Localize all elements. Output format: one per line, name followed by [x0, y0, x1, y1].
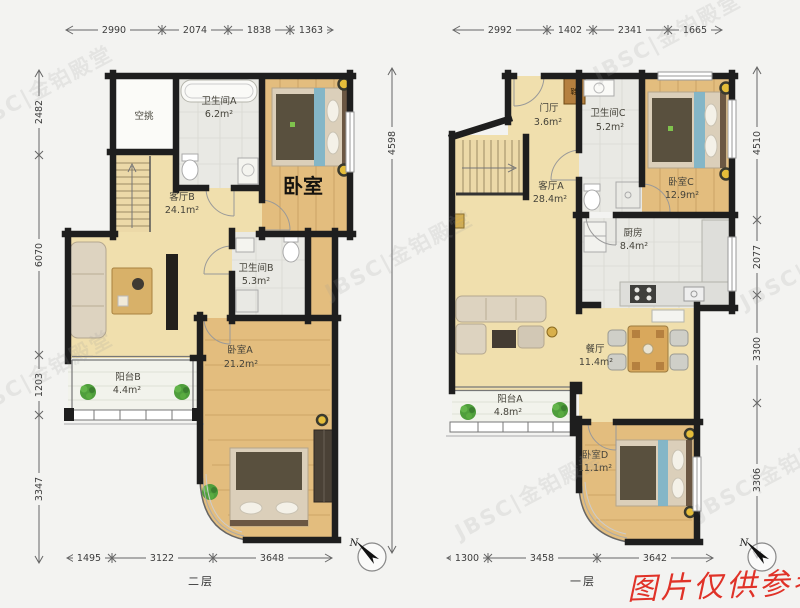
dim-label: 4510 — [752, 131, 763, 155]
sofa-living-b — [70, 242, 106, 338]
dim-label: 3347 — [34, 477, 45, 501]
reference-only-watermark: 图片仅供参考 — [626, 558, 800, 608]
sink-bath-b — [236, 238, 254, 252]
dim-label: 1402 — [558, 25, 582, 36]
compass-north-label: N — [739, 538, 750, 549]
bed-bed-a — [230, 448, 308, 526]
floor2-dim-bottom — [67, 553, 332, 563]
wardrobe-bed-a — [314, 430, 334, 502]
sink-bath-a — [238, 158, 258, 184]
toilet-bath-c — [584, 184, 600, 210]
room-bed-a-area: 21.2m² — [224, 359, 258, 370]
dim-label: 3458 — [530, 553, 554, 564]
bed-bed-d — [616, 429, 695, 517]
room-bed-c-label: 卧室C — [668, 176, 694, 188]
room-bath-b-label: 卫生间B — [238, 262, 273, 274]
room-kitchen-label: 厨房 — [623, 227, 642, 239]
room-balcony-a-area: 4.8m² — [494, 407, 522, 418]
room-bed-a-label: 卧室A — [227, 344, 253, 356]
floorplan-page: { "floor2": { "label": "二层", "dims_top":… — [0, 0, 800, 600]
plant-icon — [80, 384, 96, 400]
toilet-bath-a — [182, 154, 198, 180]
window-bedroom-top — [346, 112, 354, 172]
room-living-b-area: 24.1m² — [165, 205, 199, 216]
window-kitchen-right — [728, 237, 736, 291]
stove-icon — [630, 285, 656, 303]
room-living-a-area: 28.4m² — [533, 194, 567, 205]
chair-icon — [670, 330, 688, 346]
stairs-floor2 — [115, 156, 150, 232]
sideboard-dining — [652, 310, 684, 322]
dim-label: 1495 — [77, 553, 101, 564]
room-bath-c-label: 卫生间C — [590, 107, 626, 119]
plant-icon — [174, 384, 190, 400]
dim-label: 1363 — [299, 25, 323, 36]
plant-icon — [552, 402, 568, 418]
sink-kitchen-icon — [684, 287, 704, 301]
floor1-label: 一层 — [570, 575, 596, 588]
tv-unit-living-b — [166, 254, 178, 330]
plant-pot-icon — [547, 327, 557, 337]
bed-bed-c — [648, 83, 732, 180]
brand-watermark: JBSC|金铂殿堂 — [0, 41, 118, 141]
room-bath-b-area: 5.3m² — [242, 276, 270, 287]
dim-label: 1300 — [455, 553, 479, 564]
brand-watermark: JBSC|金铂殿堂 — [689, 426, 800, 526]
compass-north-label: N — [349, 538, 360, 549]
room-foyer-label: 门厅 — [539, 102, 559, 114]
dim-label: 1838 — [247, 25, 271, 36]
room-balcony-b-floor — [68, 358, 198, 410]
plant-icon — [460, 404, 476, 420]
dim-label: 2074 — [183, 25, 207, 36]
nightstand-lamp-icon — [317, 415, 327, 425]
room-void-label: 空挑 — [134, 110, 154, 122]
dim-label: 2077 — [752, 245, 763, 269]
north-arrow-icon — [356, 541, 386, 571]
window-bed-c-right — [728, 100, 736, 158]
dim-label: 2992 — [488, 25, 512, 36]
bedroom-annotation-label: 卧室 — [283, 174, 323, 198]
floor2-plan: 空挑 卫生间A 6.2m² 客厅B 24.1m² 卧室 卫生间B 5.3m² 卧… — [33, 24, 398, 588]
chair-icon — [670, 354, 688, 370]
dim-label: 3648 — [260, 553, 284, 564]
coffee-table-living-a — [492, 330, 516, 348]
coffee-table-living-b — [112, 268, 152, 314]
nightstand-lamp-icon — [685, 429, 695, 439]
compass-floor2: N — [349, 538, 386, 571]
dim-label: 2341 — [618, 25, 642, 36]
floorplan-canvas: 空挑 卫生间A 6.2m² 客厅B 24.1m² 卧室 卫生间B 5.3m² 卧… — [0, 0, 800, 600]
dim-label: 3300 — [752, 337, 763, 361]
dim-label: 2990 — [102, 25, 126, 36]
window-bed-c-top — [658, 72, 712, 80]
room-living-b-label: 客厅B — [169, 191, 195, 203]
room-bed-c-area: 12.9m² — [665, 190, 699, 201]
room-balcony-b-label: 阳台B — [115, 371, 141, 383]
room-balcony-a-label: 阳台A — [497, 393, 523, 405]
stairs-floor1 — [456, 140, 526, 194]
room-bath-a-label: 卫生间A — [202, 95, 238, 107]
room-dining-area: 11.4m² — [579, 357, 613, 368]
room-bath-c-area: 5.2m² — [596, 122, 624, 133]
bed-bedroom-top — [272, 79, 350, 176]
room-kitchen-area: 8.4m² — [620, 241, 648, 252]
room-dining-label: 餐厅 — [585, 343, 605, 355]
room-balcony-b-area: 4.4m² — [113, 385, 141, 396]
armchair-icon — [518, 326, 544, 348]
floor2-label: 二层 — [188, 575, 214, 588]
room-bath-a-area: 6.2m² — [205, 109, 233, 120]
dim-label: 6070 — [34, 243, 45, 267]
floor1-dim-bottom — [447, 553, 713, 563]
dim-label: 4598 — [387, 131, 398, 155]
toilet-bath-b — [283, 236, 299, 262]
dim-label: 3122 — [150, 553, 174, 564]
chair-icon — [608, 330, 626, 346]
room-foyer-area: 3.6m² — [534, 117, 562, 128]
brand-watermark: JBSC|金铂殿堂 — [734, 216, 800, 316]
room-living-a-label: 客厅A — [538, 180, 564, 192]
